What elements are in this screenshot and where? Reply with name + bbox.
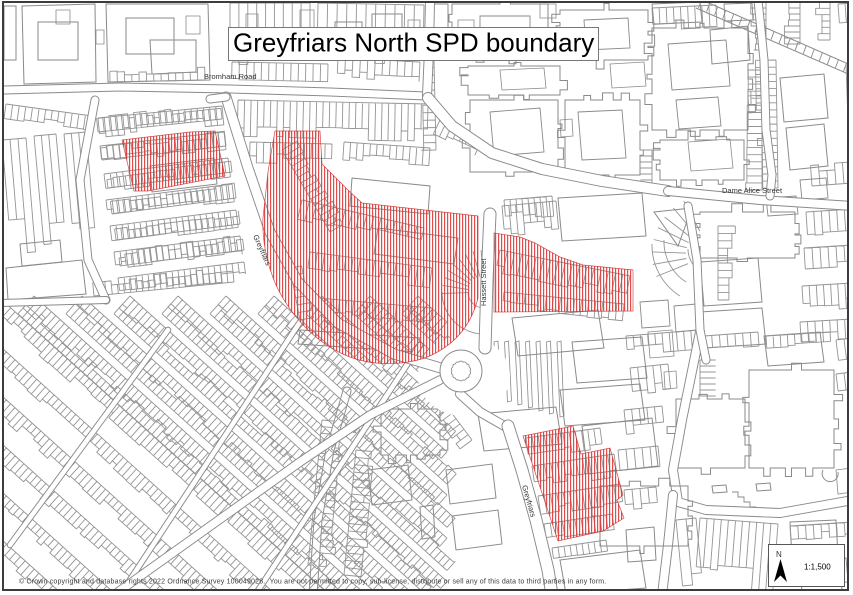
svg-text:Greyfriars North SPD boundary: Greyfriars North SPD boundary — [233, 28, 594, 58]
svg-text:© Crown copyright and database: © Crown copyright and database rights 20… — [19, 578, 606, 586]
svg-text:Dame Alice Street: Dame Alice Street — [722, 186, 783, 195]
svg-text:Bromham Road: Bromham Road — [204, 72, 257, 81]
svg-text:1:1,500: 1:1,500 — [804, 563, 831, 572]
svg-text:Hassett Street: Hassett Street — [479, 258, 488, 306]
svg-text:N: N — [776, 550, 782, 559]
